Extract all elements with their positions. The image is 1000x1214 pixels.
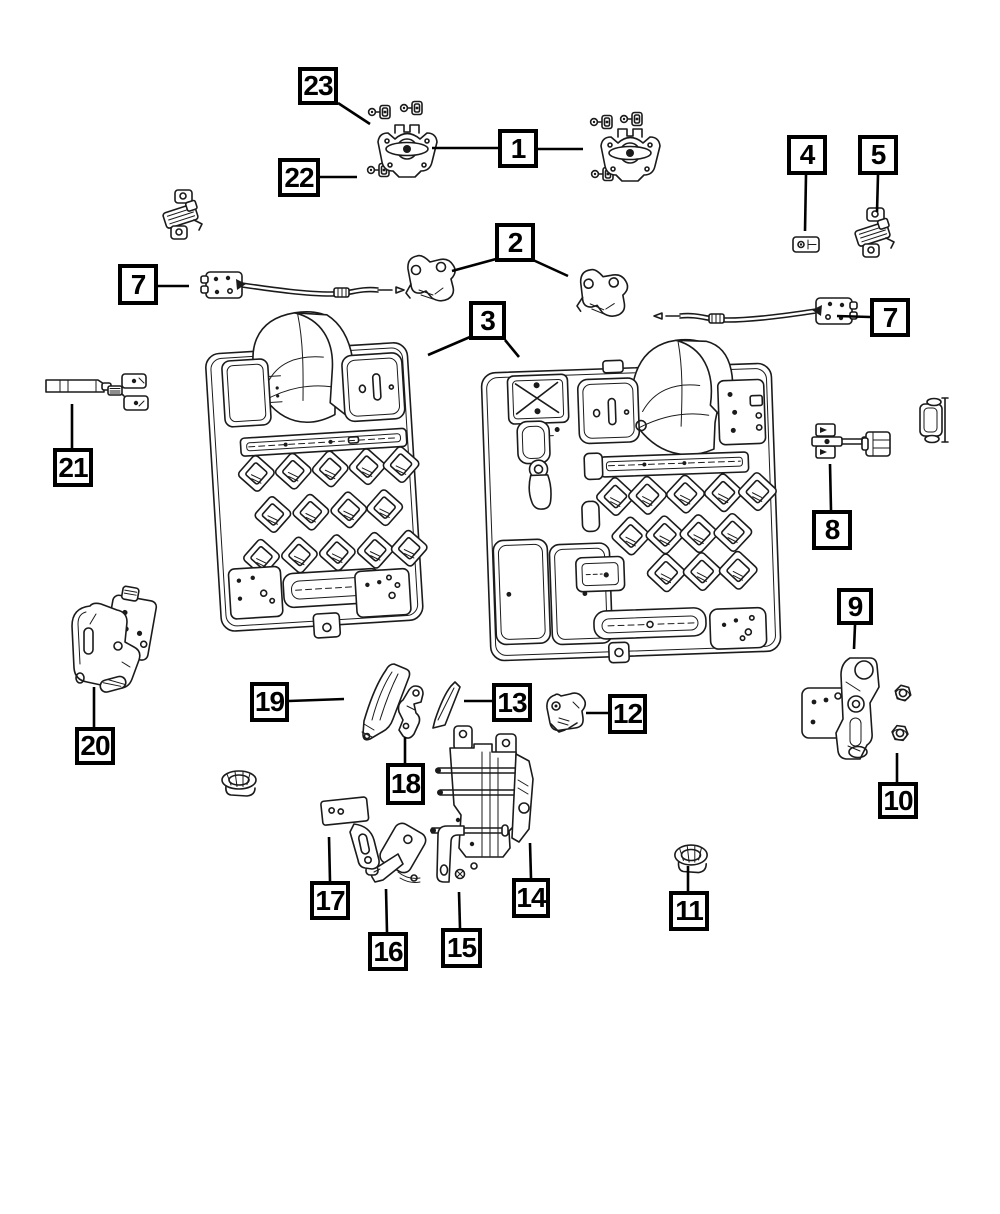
part-11-grommet	[675, 845, 707, 873]
callout-label: 3	[480, 305, 495, 337]
callout-5[interactable]: 5	[858, 135, 898, 175]
diagram-canvas: 1234577891011121314151617181920212223	[0, 0, 1000, 1214]
callout-label: 19	[255, 686, 284, 718]
callout-label: 20	[80, 730, 109, 762]
callout-10[interactable]: 10	[878, 782, 918, 819]
callout-label: 15	[447, 932, 476, 964]
callout-20[interactable]: 20	[75, 727, 115, 765]
callout-11[interactable]: 11	[669, 891, 709, 931]
callout-label: 1	[511, 133, 526, 165]
part-10-nut-upper	[893, 684, 912, 701]
callout-label: 14	[516, 882, 545, 914]
callout-19[interactable]: 19	[250, 682, 289, 722]
callout-label: 8	[825, 514, 840, 546]
callout-3[interactable]: 3	[469, 301, 506, 340]
part-5-striker	[853, 208, 894, 257]
part-1-hinge-right	[591, 113, 660, 182]
callout-label: 22	[284, 162, 313, 194]
part-4-clip	[793, 237, 819, 252]
callout-8[interactable]: 8	[812, 510, 852, 550]
part-5-striker-left	[161, 190, 202, 239]
part-2-latch-left	[406, 256, 455, 301]
callout-label: 11	[675, 895, 703, 927]
callout-22[interactable]: 22	[278, 158, 320, 197]
part-11-grommet-left	[222, 771, 256, 796]
part-20-side-bracket	[72, 584, 159, 693]
callout-13[interactable]: 13	[492, 683, 532, 722]
part-13-wedge	[433, 682, 460, 728]
callout-label: 7	[883, 302, 898, 334]
callout-1[interactable]: 1	[498, 129, 538, 168]
part-15-l-bracket	[437, 826, 465, 882]
part-7-cable-left	[201, 272, 404, 298]
part-12-latch	[547, 693, 585, 732]
callout-label: 13	[497, 687, 526, 719]
part-1-hinge-left	[368, 102, 437, 178]
callout-label: 16	[373, 936, 402, 968]
part-21-rod	[46, 380, 111, 392]
part-9-latch-bracket	[802, 658, 879, 759]
callout-4[interactable]: 4	[787, 135, 827, 175]
callout-2[interactable]: 2	[495, 223, 535, 262]
callout-label: 21	[58, 452, 87, 484]
callout-label: 5	[871, 139, 886, 171]
callout-label: 2	[508, 227, 523, 259]
callout-7[interactable]: 7	[118, 264, 158, 305]
part-21-clip	[108, 374, 148, 410]
callout-14[interactable]: 14	[512, 878, 550, 918]
part-2-latch-right	[576, 269, 628, 317]
part-8-square-clip	[862, 432, 890, 456]
callout-16[interactable]: 16	[368, 932, 408, 971]
callout-label: 12	[613, 698, 642, 730]
callout-label: 9	[848, 591, 863, 623]
callout-label: 7	[131, 269, 146, 301]
callout-9[interactable]: 9	[837, 588, 873, 625]
part-3-frame-left	[203, 305, 434, 644]
callout-label: 10	[883, 785, 912, 817]
callout-label: 23	[303, 70, 332, 102]
callout-label: 17	[315, 885, 344, 917]
callout-17[interactable]: 17	[310, 881, 350, 920]
part-7-cable-right	[654, 298, 857, 324]
callout-label: 4	[800, 139, 815, 171]
callout-label: 18	[391, 768, 420, 800]
part-10-nut	[891, 725, 909, 741]
callout-21[interactable]: 21	[53, 448, 93, 487]
callout-23[interactable]: 23	[298, 67, 338, 105]
part-8-edge-bracket	[920, 398, 948, 443]
part-3-frame-right	[480, 337, 783, 667]
callout-18[interactable]: 18	[386, 763, 425, 805]
callout-7-b[interactable]: 7	[870, 298, 910, 337]
callout-15[interactable]: 15	[441, 928, 482, 968]
callout-12[interactable]: 12	[608, 694, 647, 734]
